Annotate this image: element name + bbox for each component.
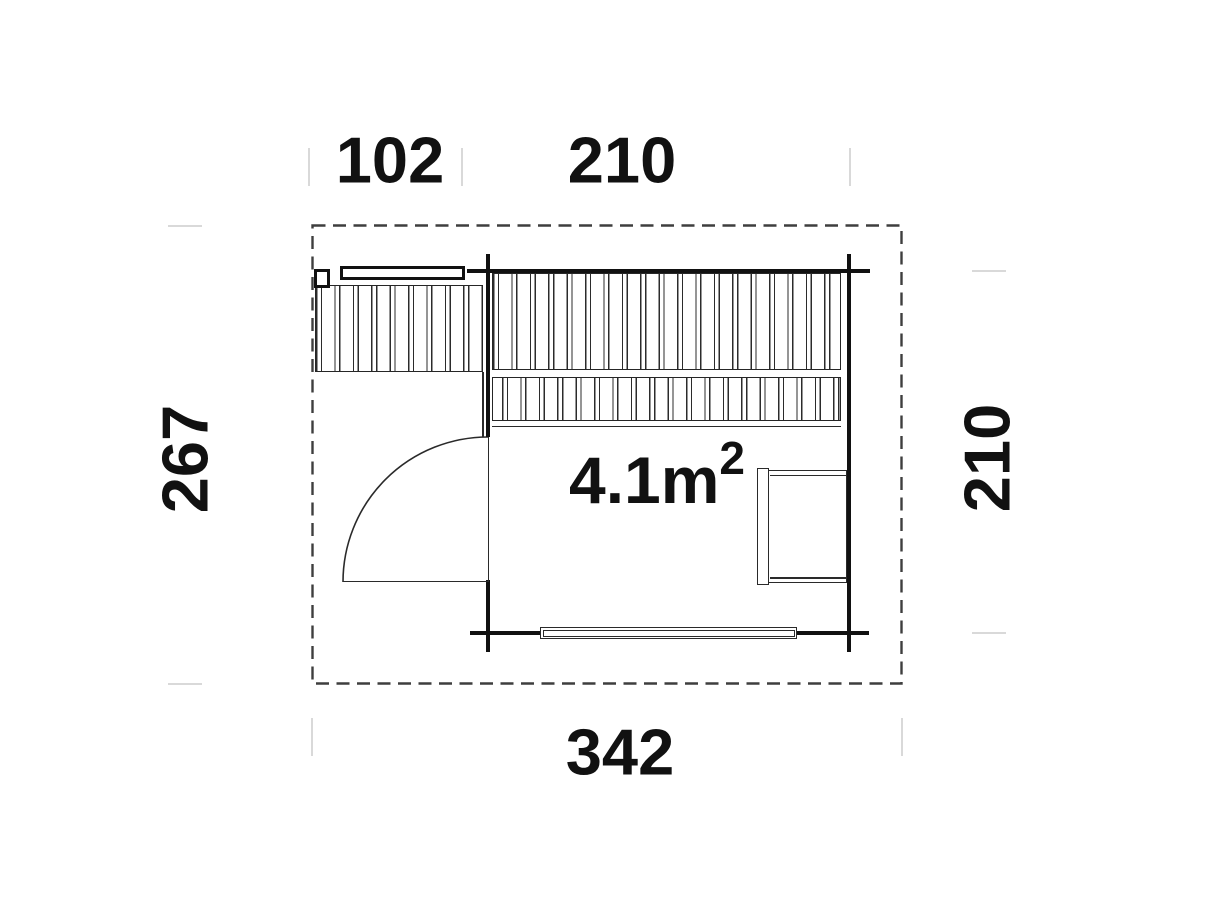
area-exponent: 2 — [719, 435, 745, 481]
window-glazing-line — [543, 630, 795, 637]
bench-inner-top-line — [770, 475, 847, 476]
back-wall-hatch-lower — [492, 377, 841, 421]
dim-tick-left-top — [168, 225, 202, 227]
dimension-label-right: 210 — [955, 404, 1020, 512]
dimension-label-left: 267 — [153, 405, 218, 513]
dim-tick-top-left — [308, 148, 310, 186]
dim-tick-left-bottom — [168, 683, 202, 685]
porch-door-jamb-line — [482, 372, 484, 437]
area-value: 4.1m — [569, 447, 719, 513]
bench-body — [768, 470, 847, 583]
dimension-label-bottom: 342 — [566, 720, 674, 785]
dim-tick-bottom-right — [901, 718, 903, 756]
porch-wall-hatch — [315, 285, 483, 372]
left-wall-upper-segment — [486, 254, 490, 437]
dimension-label-top-left: 102 — [336, 128, 444, 193]
door-opening-frame-line — [488, 437, 490, 582]
dim-tick-right-bottom — [972, 632, 1006, 634]
dimension-label-top-right: 210 — [568, 128, 676, 193]
window — [540, 627, 797, 639]
porch-corner-post — [314, 269, 330, 288]
door-leaf — [343, 581, 488, 583]
right-wall — [847, 254, 851, 652]
porch-rail-plank — [340, 266, 465, 280]
dim-tick-top-right — [849, 148, 851, 186]
door-swing-arc — [343, 437, 488, 582]
dim-tick-right-top — [972, 270, 1006, 272]
floor-plan-canvas: 102 210 267 210 342 4.1m2 — [0, 0, 1214, 911]
left-wall-lower-segment — [486, 580, 490, 652]
dim-tick-bottom-left — [311, 718, 313, 756]
bench-inner-bottom-line — [770, 577, 847, 578]
back-bench-front-edge-line — [492, 426, 841, 428]
back-wall-hatch-upper — [492, 273, 841, 370]
dim-tick-top-middle — [461, 148, 463, 186]
area-label: 4.1m2 — [569, 447, 745, 513]
